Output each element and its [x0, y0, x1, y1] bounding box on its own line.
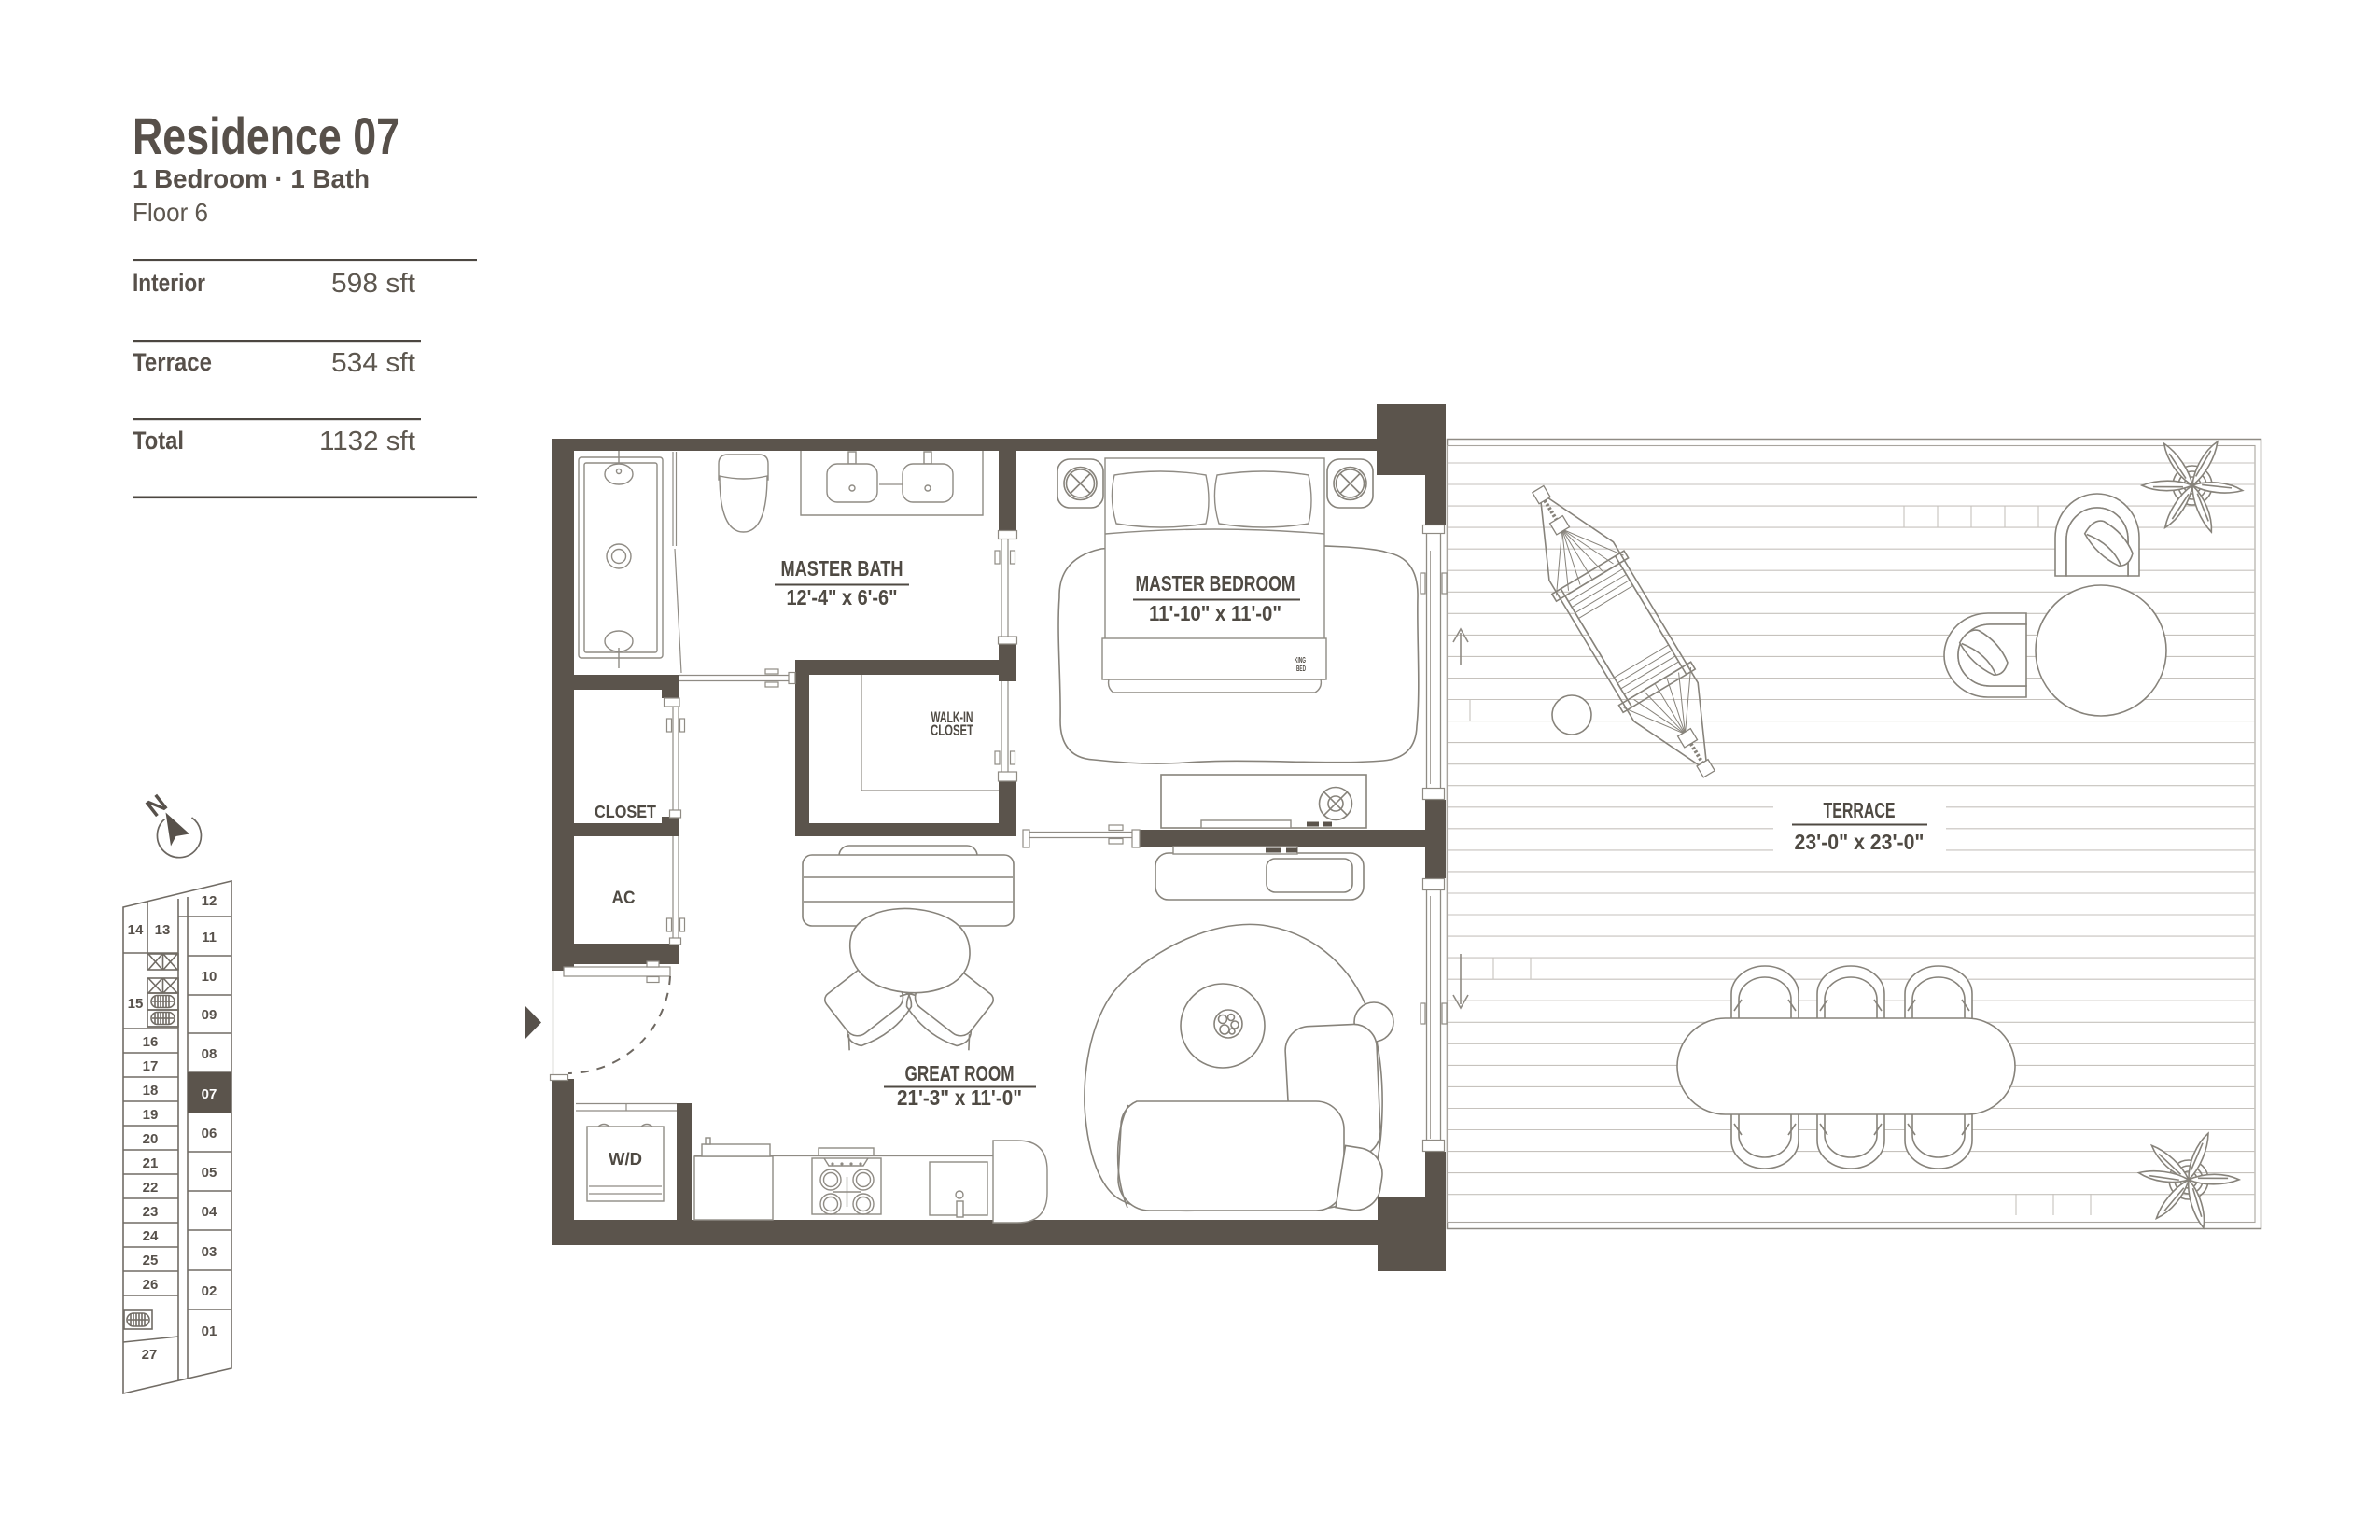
- svg-text:04: 04: [202, 1204, 217, 1220]
- svg-text:11'-10" x 11'-0": 11'-10" x 11'-0": [1149, 601, 1281, 625]
- svg-text:26: 26: [143, 1277, 159, 1293]
- svg-text:CLOSET: CLOSET: [931, 721, 973, 739]
- svg-text:534 sft: 534 sft: [331, 348, 415, 378]
- svg-text:KING: KING: [1295, 656, 1306, 665]
- svg-text:05: 05: [202, 1165, 217, 1181]
- svg-text:01: 01: [202, 1323, 217, 1339]
- svg-text:15: 15: [128, 996, 144, 1012]
- svg-text:TERRACE: TERRACE: [1824, 798, 1896, 822]
- svg-text:03: 03: [202, 1244, 217, 1260]
- svg-text:14: 14: [128, 922, 144, 938]
- svg-text:1 Bedroom · 1 Bath: 1 Bedroom · 1 Bath: [133, 164, 370, 193]
- svg-text:GREAT ROOM: GREAT ROOM: [905, 1061, 1015, 1085]
- svg-text:21'-3" x 11'-0": 21'-3" x 11'-0": [897, 1085, 1022, 1110]
- svg-text:Floor 6: Floor 6: [133, 198, 208, 227]
- svg-text:MASTER BEDROOM: MASTER BEDROOM: [1136, 571, 1295, 595]
- svg-text:Total: Total: [133, 427, 184, 455]
- svg-text:AC: AC: [612, 889, 636, 908]
- svg-text:24: 24: [143, 1228, 159, 1244]
- svg-text:20: 20: [143, 1131, 159, 1147]
- svg-text:18: 18: [143, 1083, 159, 1099]
- svg-text:Interior: Interior: [133, 269, 205, 297]
- svg-text:16: 16: [143, 1034, 159, 1050]
- svg-text:22: 22: [143, 1180, 159, 1196]
- svg-text:12: 12: [202, 893, 217, 909]
- svg-text:Terrace: Terrace: [133, 348, 212, 376]
- svg-text:Residence 07: Residence 07: [133, 106, 399, 165]
- svg-text:BED: BED: [1296, 665, 1306, 673]
- svg-text:09: 09: [202, 1007, 217, 1023]
- svg-text:23'-0" x 23'-0": 23'-0" x 23'-0": [1795, 830, 1925, 854]
- svg-text:23: 23: [143, 1204, 159, 1220]
- svg-text:17: 17: [143, 1058, 159, 1074]
- svg-text:W/D: W/D: [609, 1150, 642, 1169]
- svg-text:19: 19: [143, 1107, 159, 1123]
- svg-text:21: 21: [143, 1155, 159, 1171]
- svg-text:CLOSET: CLOSET: [595, 803, 656, 821]
- svg-text:27: 27: [142, 1347, 158, 1363]
- svg-text:11: 11: [202, 930, 217, 945]
- svg-text:25: 25: [143, 1253, 159, 1268]
- svg-text:06: 06: [202, 1126, 217, 1141]
- svg-text:08: 08: [202, 1046, 217, 1062]
- svg-text:MASTER BATH: MASTER BATH: [781, 556, 903, 581]
- svg-text:598 sft: 598 sft: [331, 269, 415, 299]
- svg-text:10: 10: [202, 969, 217, 985]
- svg-text:12'-4" x 6'-6": 12'-4" x 6'-6": [787, 585, 898, 609]
- svg-text:1132 sft: 1132 sft: [319, 427, 415, 456]
- svg-text:13: 13: [155, 922, 171, 938]
- svg-text:02: 02: [202, 1283, 217, 1299]
- svg-text:07: 07: [202, 1086, 217, 1102]
